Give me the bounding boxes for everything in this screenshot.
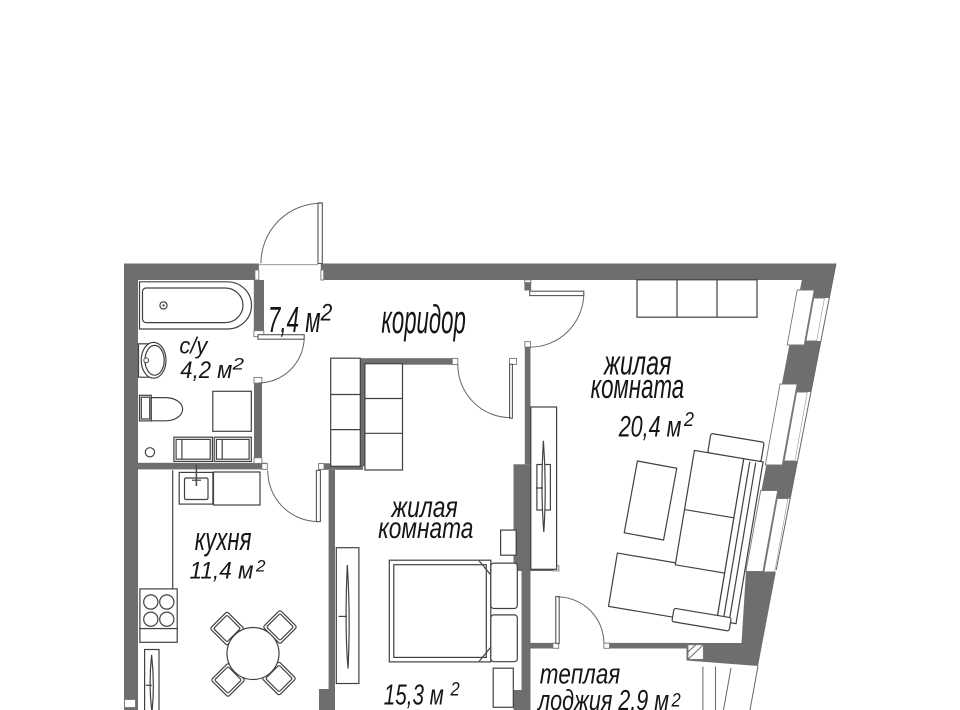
svg-text:коридор: коридор xyxy=(381,298,465,342)
svg-text:4,2 м: 4,2 м xyxy=(180,357,232,384)
svg-text:2: 2 xyxy=(255,556,266,575)
svg-text:2: 2 xyxy=(231,356,244,374)
svg-text:7,4 м: 7,4 м xyxy=(268,299,321,340)
svg-text:комната: комната xyxy=(378,512,473,545)
svg-text:2: 2 xyxy=(320,299,333,326)
svg-text:20,4 м: 20,4 м xyxy=(618,411,681,444)
svg-text:2: 2 xyxy=(450,680,460,701)
svg-text:лоджия 2,9 м: лоджия 2,9 м xyxy=(536,685,669,710)
svg-text:комната: комната xyxy=(591,368,685,406)
svg-text:кухня: кухня xyxy=(195,521,252,557)
svg-text:15,3 м: 15,3 м xyxy=(384,678,444,710)
svg-text:2: 2 xyxy=(683,409,694,431)
svg-text:с/у: с/у xyxy=(179,332,208,358)
svg-text:11,4 м: 11,4 м xyxy=(190,557,254,584)
svg-text:2: 2 xyxy=(671,690,681,710)
